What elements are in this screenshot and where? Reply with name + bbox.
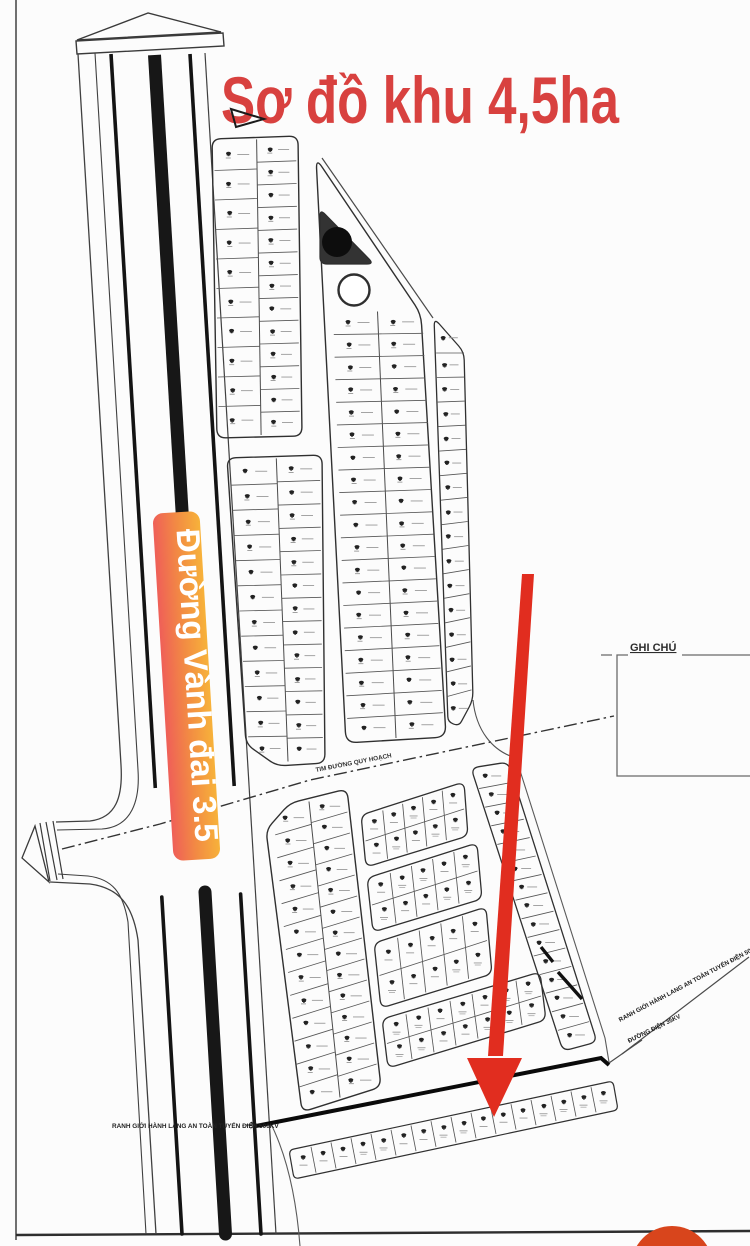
svg-text:Sơ đồ khu 4,5ha: Sơ đồ khu 4,5ha <box>221 63 620 137</box>
svg-text:GHI CHÚ: GHI CHÚ <box>630 641 677 654</box>
